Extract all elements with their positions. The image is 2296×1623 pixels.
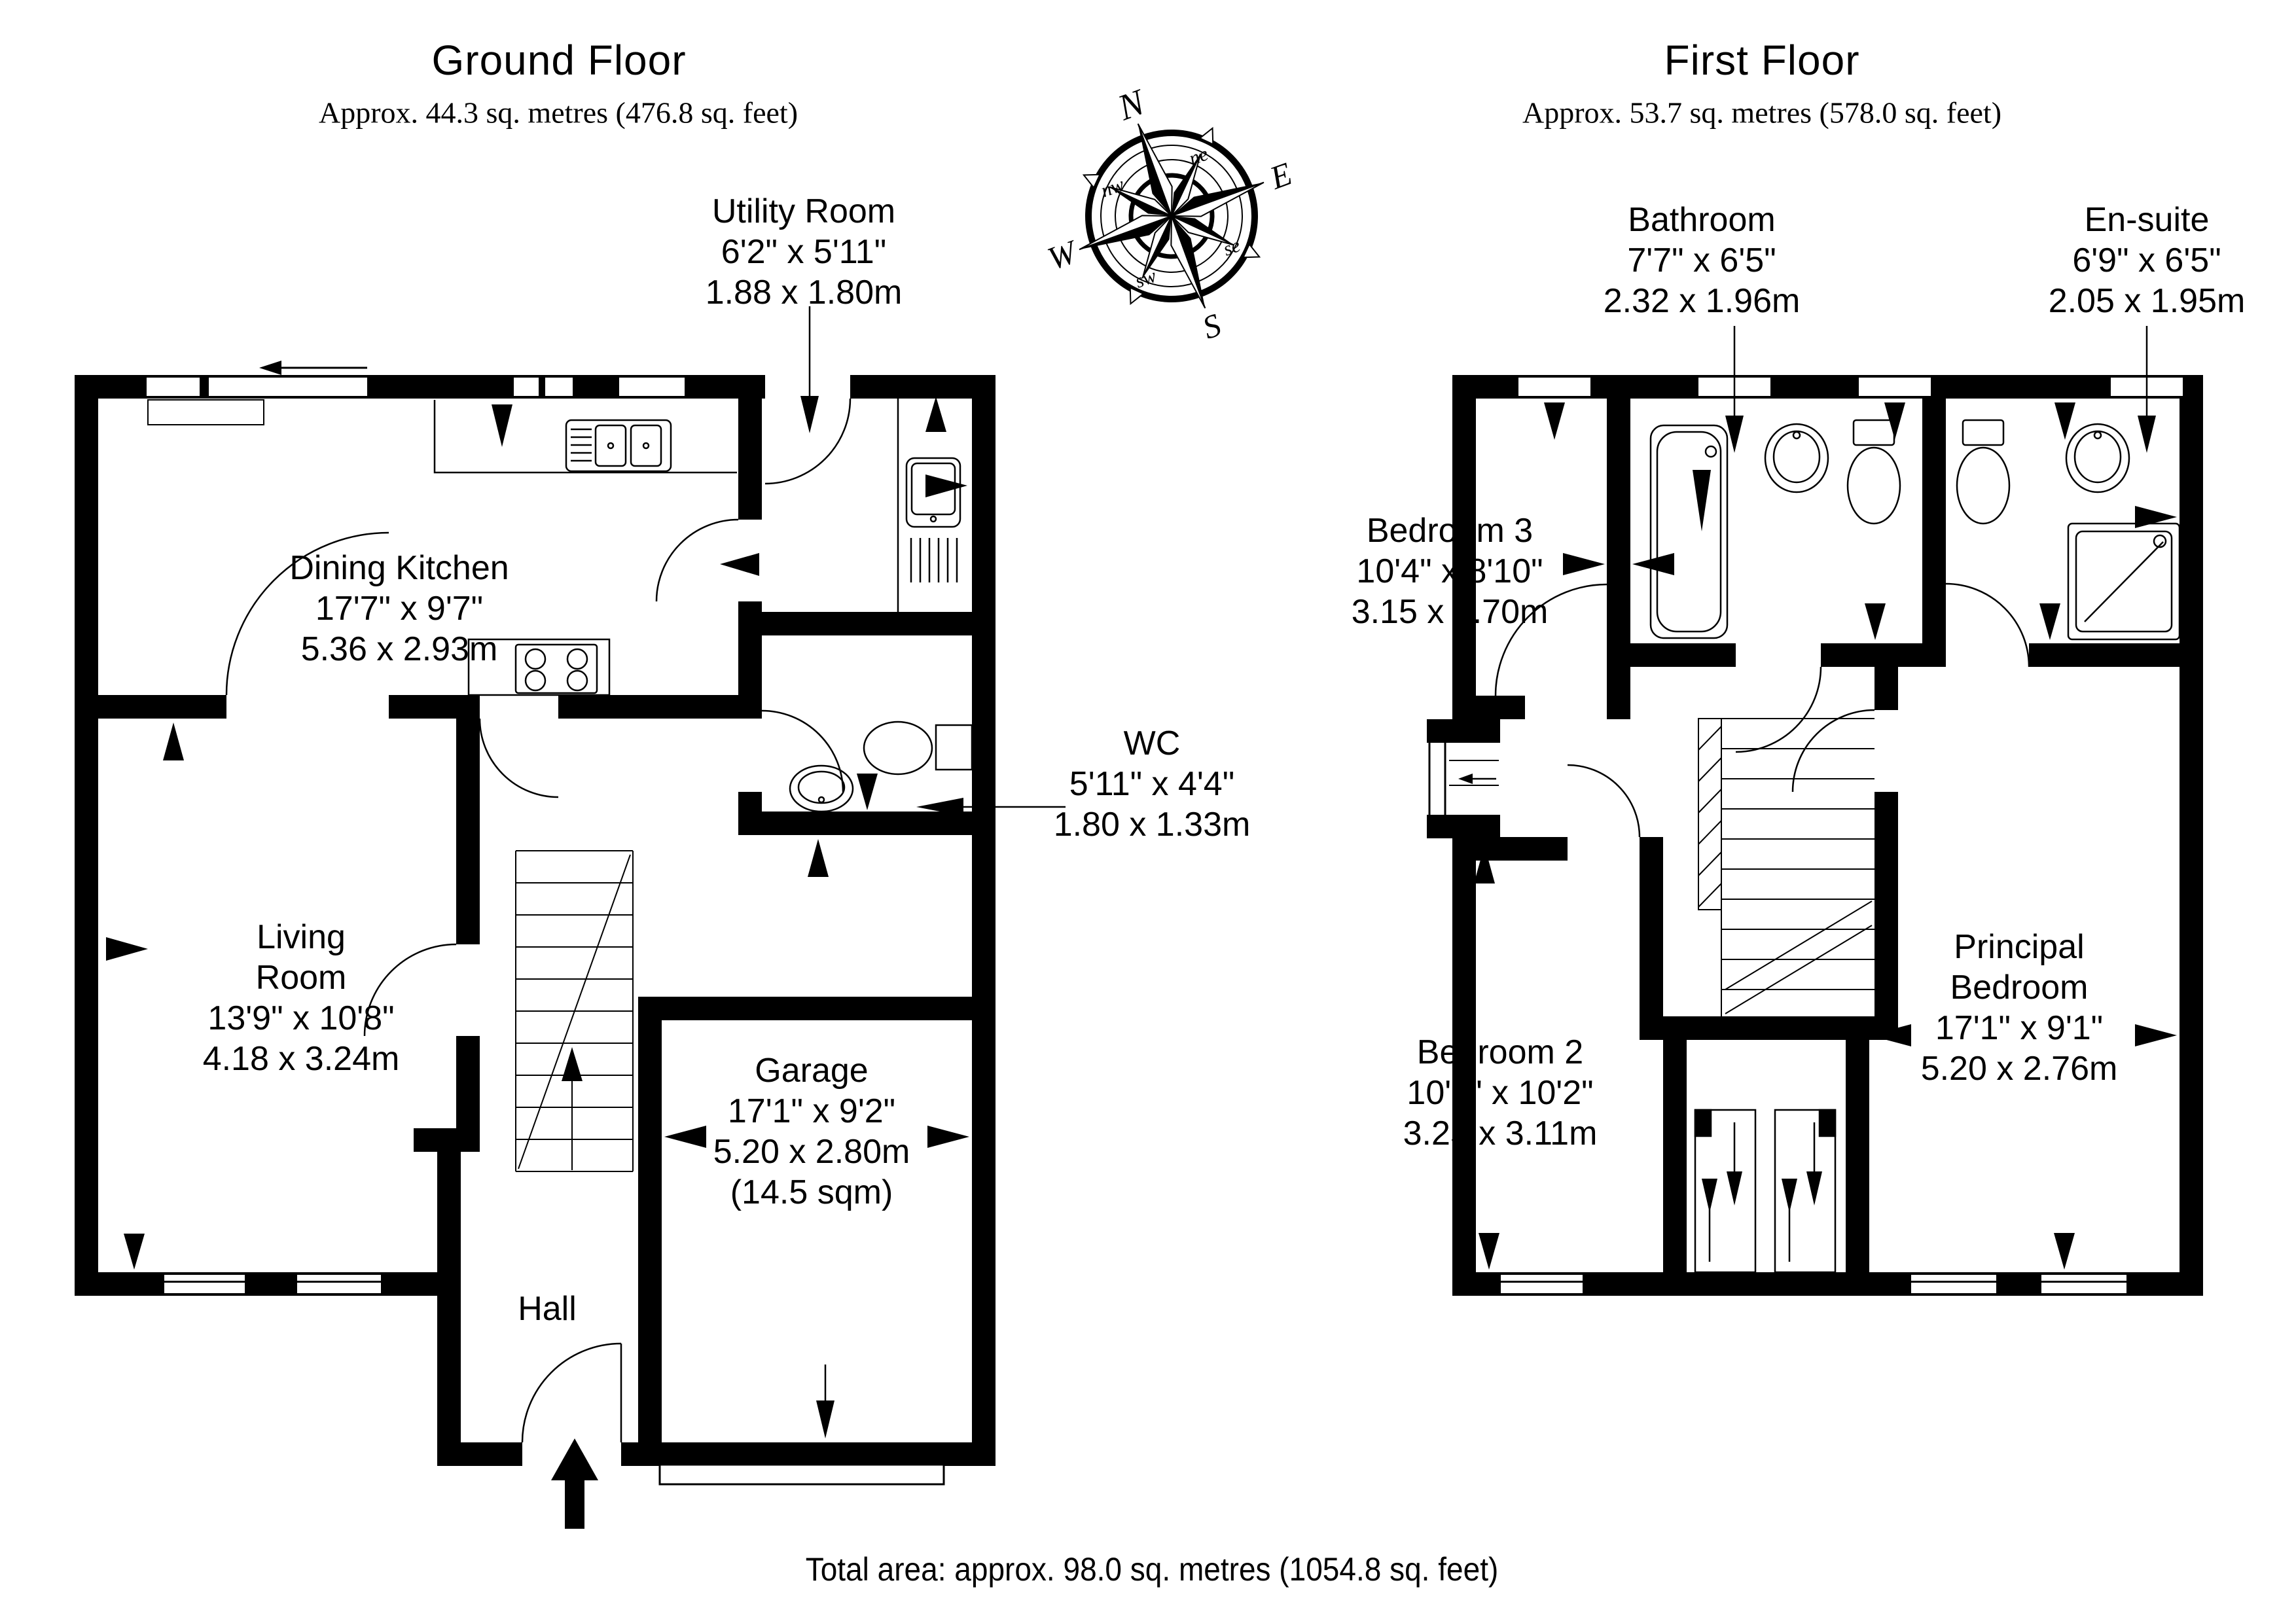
first-floor-title: First Floor — [1664, 36, 1860, 84]
shower-icon — [2068, 524, 2179, 639]
bathroom-toilet-icon — [1848, 420, 1900, 524]
room-name: Utility Room — [706, 191, 903, 232]
wc-label: WC 5'11" x 4'4" 1.80 x 1.33m — [1054, 723, 1251, 845]
compass-north-label: N — [1112, 81, 1151, 128]
room-name: Living Room — [223, 917, 380, 998]
living-room-label: Living Room 13'9" x 10'8" 4.18 x 3.24m — [203, 917, 400, 1079]
bathroom-label: Bathroom 7'7" x 6'5" 2.32 x 1.96m — [1604, 200, 1801, 321]
room-name: Bedroom 2 — [1403, 1032, 1598, 1073]
wc-toilet-icon — [864, 722, 972, 774]
room-metric: 5.20 x 2.80m — [713, 1132, 910, 1172]
ensuite-basin-icon — [2066, 424, 2129, 492]
bathroom-basin-icon — [1765, 424, 1828, 492]
first-floor-door-arcs — [1496, 584, 2029, 837]
ensuite-label: En-suite 6'9" x 6'5" 2.05 x 1.95m — [2049, 200, 2246, 321]
compass-south-label: S — [1198, 306, 1226, 346]
room-metric: 3.15 x 2.70m — [1352, 592, 1549, 632]
ground-floor-subtitle: Approx. 44.3 sq. metres (476.8 sq. feet) — [319, 96, 798, 130]
room-name: Bathroom — [1604, 200, 1801, 240]
room-metric: 5.20 x 2.76m — [1908, 1048, 2130, 1089]
room-name: Bedroom 3 — [1352, 510, 1549, 551]
room-metric: 5.36 x 2.93m — [289, 629, 509, 669]
compass-ne-label: ne — [1186, 143, 1211, 170]
room-name: WC — [1054, 723, 1251, 764]
kitchen-sink-icon — [435, 400, 737, 473]
room-name: En-suite — [2049, 200, 2246, 240]
room-imperial: 17'1" x 9'1" — [1908, 1008, 2130, 1048]
bedroom3-label: Bedroom 3 10'4" x 8'10" 3.15 x 2.70m — [1352, 510, 1549, 632]
room-imperial: 17'1" x 9'2" — [713, 1091, 910, 1132]
room-imperial: 7'7" x 6'5" — [1604, 240, 1801, 281]
room-imperial: 13'9" x 10'8" — [203, 998, 400, 1039]
room-metric: 1.80 x 1.33m — [1054, 804, 1251, 845]
compass-se-label: se — [1221, 234, 1244, 260]
compass-star — [1046, 90, 1298, 342]
compass-west-label: W — [1043, 232, 1083, 277]
ground-floor-title: Ground Floor — [431, 36, 686, 84]
first-floor-stairs — [1698, 719, 1874, 1016]
room-metric: 2.05 x 1.95m — [2049, 281, 2246, 321]
room-metric: 2.32 x 1.96m — [1604, 281, 1801, 321]
principal-bedroom-label: Principal Bedroom 17'1" x 9'1" 5.20 x 2.… — [1908, 927, 2130, 1089]
room-name: Dining Kitchen — [289, 548, 509, 588]
compass-rose-icon: N E S W ne se sw nw — [1002, 43, 1336, 388]
floorplan-page: N E S W ne se sw nw Ground Floor Approx.… — [0, 0, 2296, 1623]
room-imperial: 10'8" x 10'2" — [1403, 1073, 1598, 1113]
total-area-text: Total area: approx. 98.0 sq. metres (105… — [806, 1550, 1499, 1588]
room-imperial: 6'2" x 5'11" — [706, 232, 903, 272]
garage-label: Garage 17'1" x 9'2" 5.20 x 2.80m (14.5 s… — [713, 1050, 910, 1213]
room-metric: 1.88 x 1.80m — [706, 272, 903, 313]
dining-kitchen-label: Dining Kitchen 17'7" x 9'7" 5.36 x 2.93m — [289, 548, 509, 669]
compass-east-label: E — [1265, 155, 1297, 196]
bath-icon — [1651, 425, 1727, 638]
room-imperial: 17'7" x 9'7" — [289, 588, 509, 629]
room-imperial: 10'4" x 8'10" — [1352, 551, 1549, 592]
window-bays — [1695, 1110, 1835, 1272]
first-floor-subtitle: Approx. 53.7 sq. metres (578.0 sq. feet) — [1522, 96, 2001, 130]
room-metric: 3.25 x 3.11m — [1403, 1113, 1598, 1154]
room-imperial: 5'11" x 4'4" — [1054, 764, 1251, 804]
utility-room-label: Utility Room 6'2" x 5'11" 1.88 x 1.80m — [706, 191, 903, 313]
bedroom2-label: Bedroom 2 10'8" x 10'2" 3.25 x 3.11m — [1403, 1032, 1598, 1154]
room-metric: 4.18 x 3.24m — [203, 1039, 400, 1079]
room-imperial: 6'9" x 6'5" — [2049, 240, 2246, 281]
room-name: Principal Bedroom — [1908, 927, 2130, 1008]
room-name: Garage — [713, 1050, 910, 1091]
ground-floor-stairs — [516, 851, 633, 1171]
room-name: Hall — [518, 1289, 577, 1329]
compass-nw-label: nw — [1098, 173, 1127, 202]
hall-label: Hall — [518, 1289, 577, 1329]
ensuite-toilet-icon — [1957, 420, 2009, 524]
room-area: (14.5 sqm) — [713, 1172, 910, 1213]
